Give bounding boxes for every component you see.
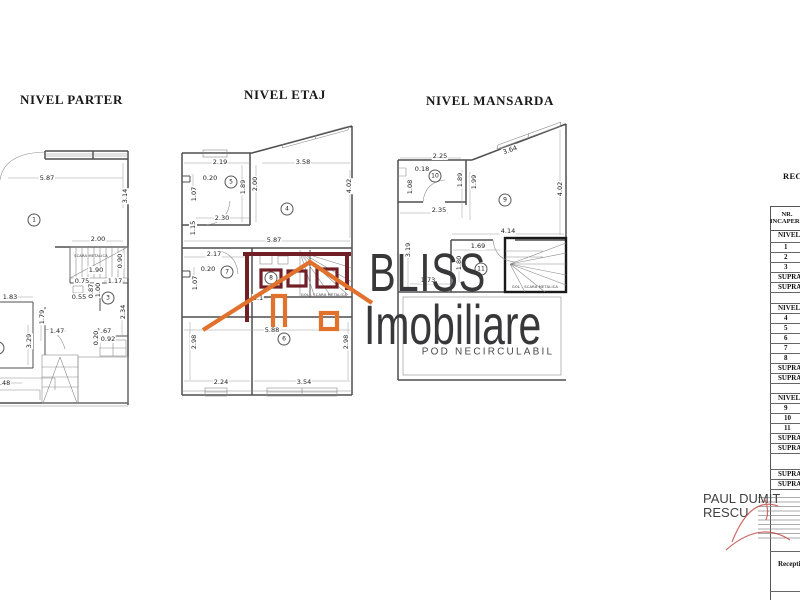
dim-label: 1.89 xyxy=(239,179,247,195)
table-row: SUPRAFATA xyxy=(770,374,800,384)
plan-title-etaj: NIVEL ETAJ xyxy=(244,87,326,103)
table-row-gap xyxy=(770,592,800,600)
floor-plan-sheet: NIVEL PARTER NIVEL ETAJ NIVEL MANSARDA xyxy=(0,0,800,600)
bliss-logo-graphic xyxy=(195,243,380,343)
room-number: 3 xyxy=(102,292,115,305)
table-reception-row: Receptionat xyxy=(770,552,800,592)
watermark-bliss: BLISS xyxy=(369,246,486,300)
table-row: NIVEL MANSARDA xyxy=(770,394,800,404)
dim-label: 4.14 xyxy=(500,227,516,235)
stair-label-parter: SCARA METALICA xyxy=(74,254,108,258)
room-number: 1 xyxy=(28,214,41,227)
dim-label: 2.25 xyxy=(432,152,448,160)
dim-label: 2.35 xyxy=(431,206,447,214)
dim-label: 0.92 xyxy=(100,335,116,343)
table-total-row: SUPRAFATA xyxy=(770,470,800,480)
table-row: 9 xyxy=(770,404,800,414)
room-number: 5 xyxy=(225,176,238,189)
dim-label: 0.18 xyxy=(414,165,430,173)
table-row: NIVEL PARTER xyxy=(770,231,800,243)
dim-label: 2.00 xyxy=(90,235,106,243)
table-row: SUPRAFATA xyxy=(770,364,800,374)
table-row: SUPRAFATA xyxy=(770,283,800,293)
dim-label: 4.02 xyxy=(556,181,564,197)
table-row: 6 xyxy=(770,334,800,344)
table-row: 3 xyxy=(770,263,800,273)
plan-title-parter: NIVEL PARTER xyxy=(20,92,123,108)
room-number: 10 xyxy=(429,170,442,183)
dim-label: 1.17 xyxy=(107,277,123,285)
stair-label-mansarda: GOL - SCARA METALICA xyxy=(512,285,558,289)
recap-table-header: NR. INCAPERE xyxy=(770,206,800,231)
table-row: 8 xyxy=(770,354,800,364)
dim-label: 0.55 xyxy=(71,293,87,301)
dim-label: 2.30 xyxy=(214,214,230,222)
table-row-gap xyxy=(770,384,800,394)
dim-label: 1.07 xyxy=(190,186,198,202)
table-row: NIVEL ETAJ xyxy=(770,304,800,314)
dim-label: 3.58 xyxy=(295,158,311,166)
table-row: 7 xyxy=(770,344,800,354)
dim-label: 2.48 xyxy=(0,379,11,387)
table-row: SUPRAFATA xyxy=(770,273,800,283)
table-row: 5 xyxy=(770,324,800,334)
watermark-imobiliare: Imobiliare xyxy=(364,297,541,353)
dim-label: 1.99 xyxy=(470,174,478,190)
dim-label: 5.87 xyxy=(39,174,55,182)
dim-label: 1.15 xyxy=(189,220,197,236)
dim-label: 2.24 xyxy=(213,378,229,386)
plan-title-mansarda: NIVEL MANSARDA xyxy=(426,93,554,109)
dim-label: 1.83 xyxy=(2,293,18,301)
dim-label: 1.89 xyxy=(456,172,464,188)
dim-label: 3.14 xyxy=(121,188,129,204)
table-row: 1 xyxy=(770,243,800,253)
dim-label: 1.79 xyxy=(38,309,46,325)
table-total-row: SUPRAFATA xyxy=(770,480,800,490)
dim-label: 2.00 xyxy=(251,176,259,192)
table-row-gap xyxy=(770,454,800,470)
dim-label: 3.54 xyxy=(296,378,312,386)
dim-label: 1.90 xyxy=(88,266,104,274)
table-row: SUPRAFATA xyxy=(770,444,800,454)
red-stamp-icon xyxy=(720,490,800,556)
room-number: 9 xyxy=(499,194,512,207)
dim-label: 0.90 xyxy=(116,253,124,269)
dim-label: 2.34 xyxy=(119,304,127,320)
dim-label: 0.20 xyxy=(202,174,218,182)
recap-table-title: RECAPITULATIE xyxy=(783,171,800,181)
table-row: 4 xyxy=(770,314,800,324)
table-row-gap xyxy=(770,293,800,304)
room-number: 4 xyxy=(281,203,294,216)
table-row: 11 xyxy=(770,424,800,434)
table-row: 2 xyxy=(770,253,800,263)
dim-label: 1.08 xyxy=(406,179,414,195)
table-row: SUPRAFATA xyxy=(770,434,800,444)
dim-label: 3.29 xyxy=(25,333,33,349)
dim-label: 4.02 xyxy=(345,178,353,194)
dim-label: 1.47 xyxy=(49,327,65,335)
table-row: 10 xyxy=(770,414,800,424)
dim-label: 2.19 xyxy=(212,158,228,166)
